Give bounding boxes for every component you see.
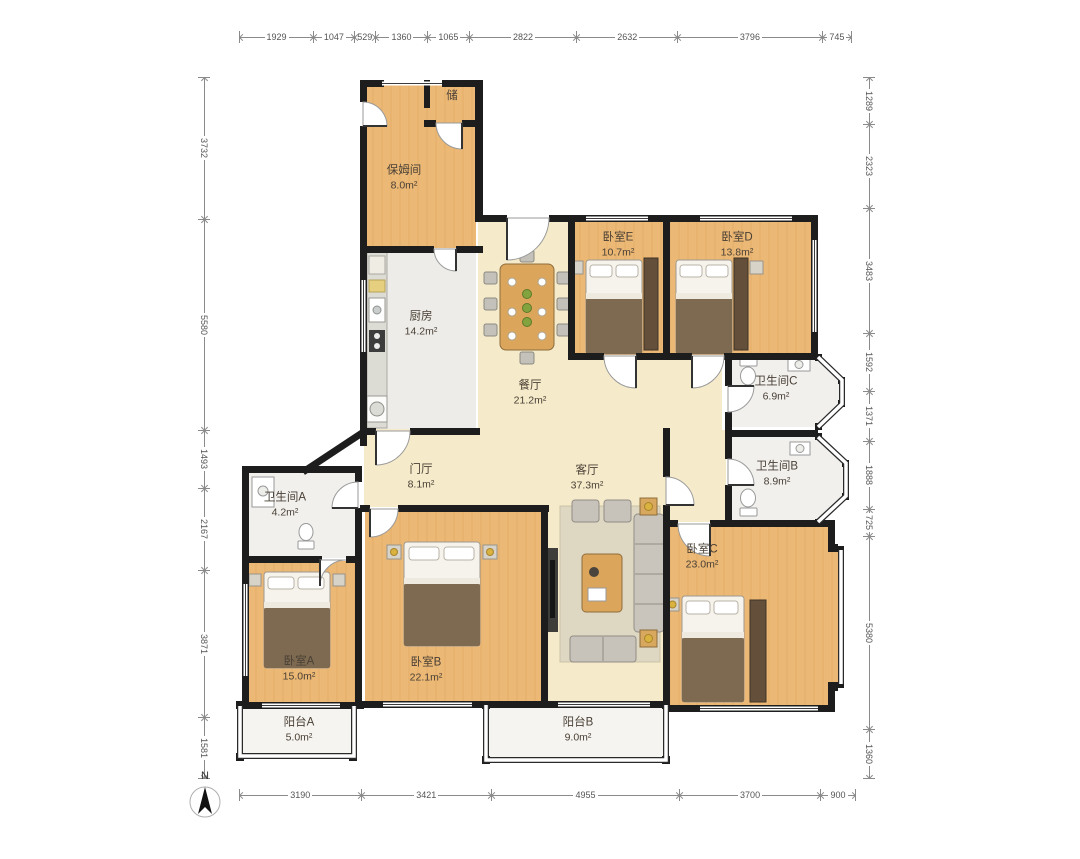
living-room-set xyxy=(548,498,664,662)
compass-n-label: N xyxy=(201,770,209,782)
dim-label: 3190 xyxy=(288,790,312,800)
dim-label: 1371 xyxy=(864,404,874,428)
dimension-chain-top: 1929104752913601065282226323796745 xyxy=(239,31,852,43)
dim-label: 1047 xyxy=(322,32,346,42)
dim-label: 3483 xyxy=(864,259,874,283)
dim-label: 4955 xyxy=(573,790,597,800)
dim-label: 2822 xyxy=(511,32,535,42)
dim-label: 1888 xyxy=(864,463,874,487)
bed-b xyxy=(387,542,497,646)
compass-north-indicator: N xyxy=(186,770,224,821)
dim-label: 3732 xyxy=(199,136,209,160)
dimension-chain-left: 373255801493216738711581 xyxy=(198,77,210,779)
dim-label: 1360 xyxy=(389,32,413,42)
dim-label: 1065 xyxy=(436,32,460,42)
dim-label: 2167 xyxy=(199,517,209,541)
dimension-chain-bottom: 3190342149553700900 xyxy=(239,789,856,801)
dim-label: 5380 xyxy=(864,621,874,645)
dim-label: 5580 xyxy=(199,313,209,337)
floor-plan-page: 储 保姆间 8.0m² 厨房 14.2m² 卧室E 10.7m² 卧室D 13.… xyxy=(0,0,1080,859)
dim-label: 3871 xyxy=(199,632,209,656)
dim-label: 1360 xyxy=(864,742,874,766)
dim-label: 2323 xyxy=(864,154,874,178)
dim-label: 1493 xyxy=(199,447,209,471)
dim-label: 1289 xyxy=(864,89,874,113)
dim-label: 1592 xyxy=(864,350,874,374)
dim-label: 3796 xyxy=(738,32,762,42)
dim-label: 900 xyxy=(828,790,847,800)
floor-plan-canvas xyxy=(0,0,1080,859)
compass-arrow-icon xyxy=(187,783,223,821)
kitchen-counter xyxy=(367,252,387,428)
dim-label: 3700 xyxy=(738,790,762,800)
dim-label: 3421 xyxy=(414,790,438,800)
dim-label: 529 xyxy=(355,32,374,42)
dim-label: 1581 xyxy=(199,736,209,760)
dim-label: 725 xyxy=(864,513,874,532)
dim-label: 1929 xyxy=(265,32,289,42)
dimension-chain-right: 12892323348315921371188872553801360 xyxy=(863,77,875,779)
dim-label: 2632 xyxy=(615,32,639,42)
dim-label: 745 xyxy=(827,32,846,42)
